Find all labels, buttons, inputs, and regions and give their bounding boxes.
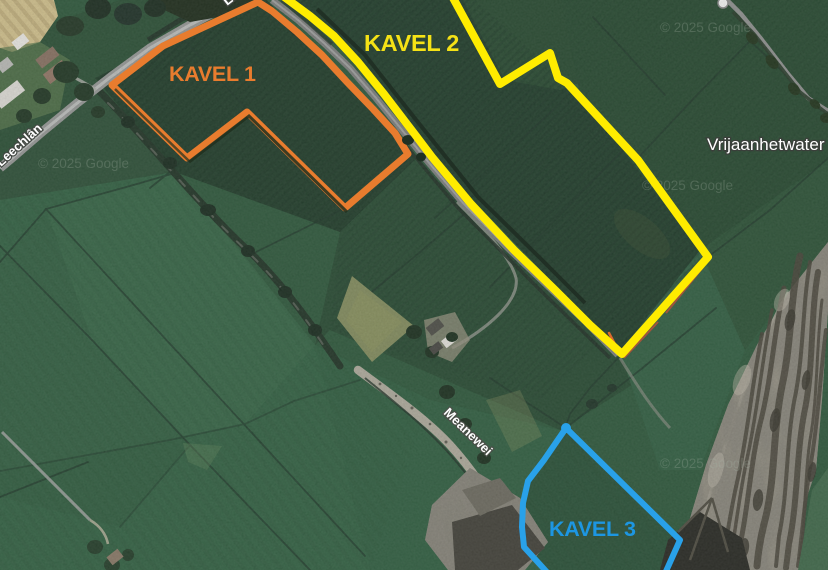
svg-text:KAVEL 2: KAVEL 2 — [364, 30, 459, 56]
svg-text:© 2025 Google: © 2025 Google — [660, 20, 751, 35]
svg-text:© 2025 Google: © 2025 Google — [38, 156, 129, 171]
svg-text:Vrijaanhetwater: Vrijaanhetwater — [707, 135, 825, 154]
svg-text:KAVEL 1: KAVEL 1 — [169, 62, 256, 86]
svg-text:KAVEL 3: KAVEL 3 — [549, 517, 636, 541]
svg-text:© 2025 Google: © 2025 Google — [660, 456, 751, 471]
